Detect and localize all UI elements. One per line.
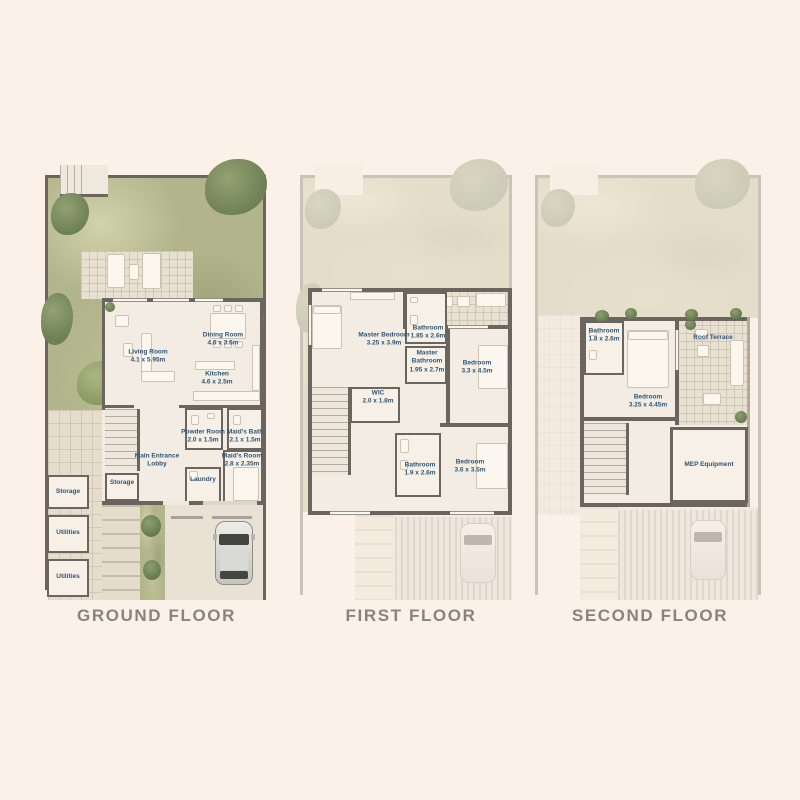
- room-label-bathroom: Bathroom1.8 x 2.6m: [588, 328, 619, 345]
- room-name: Maid's Room: [222, 453, 262, 461]
- room-name: Kitchen: [201, 371, 232, 379]
- staircase: [584, 423, 626, 495]
- side-table: [129, 264, 139, 280]
- parking-stop: [212, 516, 252, 519]
- room-dims: 2.1 x 1.5m: [227, 437, 263, 445]
- sliding-door: [675, 330, 679, 370]
- room-dims: 2.0 x 1.5m: [181, 437, 225, 445]
- room-dims: 2.8 x 2.35m: [222, 461, 262, 469]
- terrace-sofa: [730, 340, 744, 386]
- room-name: Bathroom: [404, 462, 435, 470]
- terrace-sofa: [476, 293, 506, 307]
- room-dims: 4.6 x 3.6m: [203, 340, 243, 348]
- first-floor-title: FIRST FLOOR: [300, 606, 522, 626]
- room-name: Laundry: [190, 476, 216, 484]
- room-label-roof-terrace: Roof Terrace: [693, 334, 733, 342]
- side-pavement: [538, 315, 580, 515]
- walk-path: [355, 515, 393, 600]
- stair-wall: [348, 387, 351, 475]
- window: [330, 511, 370, 515]
- room-name: Maid's Bath: [227, 429, 263, 437]
- staircase: [312, 387, 348, 475]
- car-rear-window: [220, 571, 248, 579]
- plant: [105, 302, 115, 312]
- room-name: Bedroom: [461, 360, 492, 368]
- room-label-powder: Powder Room2.0 x 1.5m: [181, 429, 225, 446]
- house-wall-bottom: [580, 503, 750, 507]
- room-label-storage-inner: Storage: [110, 479, 134, 487]
- ground-floor-plan: Living Room4.1 x 5.95m Dining Room4.6 x …: [45, 165, 268, 600]
- room-label-bathroom-top: Bathroom1.85 x 2.6m: [411, 325, 446, 342]
- toilet: [410, 315, 418, 325]
- room-name: Living Room: [128, 349, 167, 357]
- room-name: Bathroom: [588, 328, 619, 336]
- boundary-wall-right: [758, 175, 761, 595]
- sliding-door: [448, 325, 488, 329]
- bush: [143, 560, 161, 580]
- sink: [207, 413, 215, 419]
- floorplan-canvas: Living Room4.1 x 5.95m Dining Room4.6 x …: [0, 0, 800, 800]
- dining-chair: [235, 305, 243, 312]
- room-name: Storage: [56, 488, 80, 496]
- plant: [625, 308, 637, 319]
- car-windshield: [219, 534, 249, 545]
- room-dims: 1.8 x 2.6m: [588, 336, 619, 344]
- room-label-bathroom-bottom: Bathroom1.9 x 2.6m: [404, 462, 435, 479]
- car-windshield: [464, 535, 492, 545]
- interior-wall: [580, 417, 676, 421]
- toilet: [589, 350, 597, 360]
- room-label-utilities-upper: Utilities: [56, 529, 79, 537]
- armchair: [115, 315, 129, 327]
- room-label-wic: WIC2.0 x 1.8m: [362, 390, 393, 407]
- room-dims: 4.6 x 2.5m: [201, 379, 232, 387]
- room-name: Dining Room: [203, 332, 243, 340]
- room-label-bedroom-bottom: Bedroom3.6 x 3.5m: [454, 459, 485, 476]
- room-label-utilities-lower: Utilities: [56, 573, 79, 581]
- sink: [410, 297, 418, 303]
- room-label-living: Living Room4.1 x 5.95m: [128, 349, 167, 366]
- ground-floor-title: GROUND FLOOR: [45, 606, 268, 626]
- room-name: Bedroom: [454, 459, 485, 467]
- room-name: WIC: [362, 390, 393, 398]
- room-name: Storage: [110, 479, 134, 487]
- room-label-bedroom-right: Bedroom3.3 x 4.5m: [461, 360, 492, 377]
- house-wall-left: [102, 298, 105, 410]
- terrace-chair: [457, 296, 470, 307]
- lounge-chair: [142, 253, 161, 289]
- room-label-bedroom: Bedroom3.25 x 4.45m: [629, 394, 667, 411]
- toilet: [191, 415, 199, 425]
- window: [450, 511, 494, 515]
- room-name: Bedroom: [629, 394, 667, 402]
- walk-path: [580, 507, 618, 600]
- room-name: Powder Room: [181, 429, 225, 437]
- room-dims: 3.25 x 3.9m: [358, 340, 409, 348]
- room-name: MEP Equipment: [684, 461, 733, 469]
- bed-pillows: [313, 306, 341, 314]
- room-dims: 1.9 x 2.6m: [404, 470, 435, 478]
- walk-path: [102, 505, 140, 600]
- room-label-mep: MEP Equipment: [684, 461, 733, 469]
- room-label-master-bedroom: Master Bedroom3.25 x 3.9m: [358, 332, 409, 349]
- car-mirror: [251, 534, 255, 540]
- interior-wall: [102, 405, 134, 408]
- room-label-kitchen: Kitchen4.6 x 2.5m: [201, 371, 232, 388]
- dining-chair: [224, 305, 232, 312]
- lounge-chair: [107, 254, 125, 288]
- wardrobe: [350, 292, 395, 300]
- room-name: Main Entrance Lobby: [131, 453, 183, 470]
- second-floor-plan: Bathroom1.8 x 2.6m Roof Terrace Bedroom3…: [535, 165, 765, 600]
- window: [195, 298, 223, 302]
- room-name: Master Bedroom: [358, 332, 409, 340]
- dining-chair: [213, 305, 221, 312]
- plant: [730, 308, 742, 319]
- room-label-lobby: Main Entrance Lobby: [131, 453, 183, 470]
- bed: [233, 467, 259, 501]
- room-label-master-bathroom: Master Bathroom1.95 x 2.7m: [408, 349, 446, 374]
- bathtub: [400, 439, 409, 453]
- kitchen-island: [195, 361, 235, 370]
- window: [113, 298, 147, 302]
- boundary-wall-right: [263, 175, 266, 600]
- toilet: [233, 415, 241, 425]
- room-name: Bathroom: [411, 325, 446, 333]
- boundary-wall-left: [300, 175, 303, 595]
- second-floor-title: SECOND FLOOR: [535, 606, 765, 626]
- room-label-laundry: Laundry: [190, 476, 216, 484]
- room-dims: 4.1 x 5.95m: [128, 357, 167, 365]
- room-dims: 1.95 x 2.7m: [408, 366, 446, 374]
- room-name: Utilities: [56, 529, 79, 537]
- kitchen-counter: [252, 345, 260, 391]
- car: [215, 521, 253, 585]
- stair-wall: [626, 423, 629, 495]
- car-windshield: [694, 532, 722, 542]
- room-label-dining: Dining Room4.6 x 3.6m: [203, 332, 243, 349]
- room-dims: 3.6 x 3.5m: [454, 467, 485, 475]
- room-dims: 3.3 x 4.5m: [461, 368, 492, 376]
- car-mirror: [213, 534, 217, 540]
- kitchen-counter: [193, 391, 260, 401]
- entry-step-lines: [60, 165, 86, 195]
- terrace-table: [697, 345, 709, 357]
- bed-pillows: [628, 331, 668, 340]
- plant: [735, 411, 747, 423]
- interior-wall: [440, 423, 512, 427]
- room-label-maids-room: Maid's Room2.8 x 2.35m: [222, 453, 262, 470]
- terrace-chair: [703, 393, 721, 405]
- room-name: Master Bathroom: [408, 349, 446, 366]
- car: [690, 520, 726, 580]
- room-label-storage-left: Storage: [56, 488, 80, 496]
- room-label-maids-bath: Maid's Bath2.1 x 1.5m: [227, 429, 263, 446]
- room-dims: 1.85 x 2.6m: [411, 333, 446, 341]
- room-name: Roof Terrace: [693, 334, 733, 342]
- bush: [141, 515, 161, 537]
- plant: [685, 309, 698, 320]
- pergola-roof: [618, 510, 758, 600]
- interior-wall: [446, 329, 450, 425]
- room-dims: 3.25 x 4.45m: [629, 402, 667, 410]
- room-name: Utilities: [56, 573, 79, 581]
- car-roof: [220, 546, 248, 570]
- car: [460, 523, 496, 583]
- parking-stop: [171, 516, 203, 519]
- first-floor-plan: Master Bedroom3.25 x 3.9m Bathroom1.85 x…: [300, 165, 522, 600]
- sliding-door: [153, 298, 189, 302]
- sofa: [141, 371, 175, 382]
- house-wall-right: [508, 288, 512, 515]
- room-dims: 2.0 x 1.8m: [362, 398, 393, 406]
